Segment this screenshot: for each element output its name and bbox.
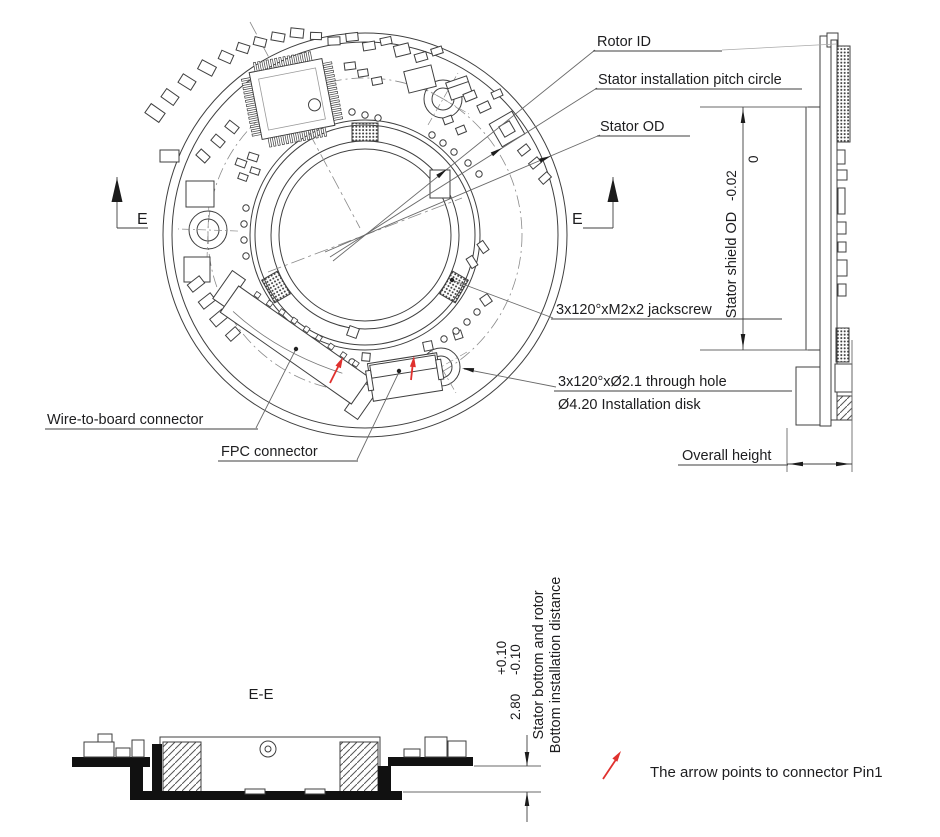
label-wire-to-board: Wire-to-board connector — [47, 412, 204, 428]
dim-note-line1: Stator bottom and rotor — [531, 590, 547, 739]
encoder-side-view — [796, 33, 852, 426]
jackscrew-top — [352, 123, 378, 141]
technical-drawing: Rotor ID Stator installation pitch circl… — [0, 0, 940, 837]
connector-profile-mid — [836, 328, 849, 362]
svg-text:0: 0 — [746, 155, 761, 163]
dim-bottom-distance: 2.80 -0.10 +0.10 — [494, 641, 523, 720]
label-rotor-id: Rotor ID — [597, 34, 651, 50]
section-arrow-icon — [608, 178, 619, 202]
shield-plate — [820, 36, 831, 426]
label-stator-od: Stator OD — [600, 119, 664, 135]
rotor-section-bottom — [130, 791, 402, 800]
label-overall-height: Overall height — [682, 448, 771, 464]
svg-text:+0.10: +0.10 — [494, 641, 509, 675]
encoder-top-view — [145, 22, 567, 437]
section-letter-right: E — [572, 211, 583, 228]
pin1-legend-arrow-icon — [603, 749, 623, 779]
annotation-labels: Rotor ID Stator installation pitch circl… — [47, 34, 883, 781]
label-through-hole: 3x120°xØ2.1 through hole — [558, 374, 727, 390]
dim-note-line2: Bottom installation distance — [548, 577, 564, 754]
fpc-connector — [364, 352, 445, 401]
section-view-ee — [72, 734, 473, 800]
svg-text:Bottom installation distance: Bottom installation distance — [548, 577, 564, 754]
qfp-chip — [239, 48, 346, 150]
pcb-edge — [831, 40, 837, 420]
pin1-arrows — [330, 356, 623, 779]
svg-text:Stator bottom and rotor: Stator bottom and rotor — [531, 590, 547, 739]
section-letter-left: E — [137, 211, 148, 228]
svg-text:-0.02: -0.02 — [724, 170, 739, 201]
label-pitch-circle: Stator installation pitch circle — [598, 72, 782, 88]
section-arrow-icon — [112, 178, 123, 202]
connector-profile-bottom — [835, 364, 852, 392]
connector-profile-top — [837, 46, 850, 142]
label-jackscrew: 3x120°xM2x2 jackscrew — [556, 302, 712, 318]
drawing-canvas: Rotor ID Stator installation pitch circl… — [0, 0, 940, 837]
jackscrew-left — [262, 271, 291, 303]
svg-text:2.80: 2.80 — [508, 694, 523, 720]
through-hole-left — [177, 199, 239, 261]
section-marker-right — [583, 177, 613, 228]
svg-text:Stator shield OD: Stator shield OD — [724, 212, 740, 318]
pcb-section-right — [388, 757, 473, 766]
jackscrew-right — [440, 271, 469, 303]
stator-shield-body — [806, 107, 820, 350]
svg-text:-0.10: -0.10 — [508, 644, 523, 675]
pcb-section-left — [72, 757, 150, 767]
label-fpc: FPC connector — [221, 444, 318, 460]
rotor-hub-profile — [796, 367, 820, 425]
label-installation-disk: Ø4.20 Installation disk — [558, 397, 701, 413]
pin1-note: The arrow points to connector Pin1 — [650, 764, 883, 781]
dim-shield-od: Stator shield OD -0.02 0 — [724, 155, 761, 318]
section-title: E-E — [248, 686, 273, 703]
